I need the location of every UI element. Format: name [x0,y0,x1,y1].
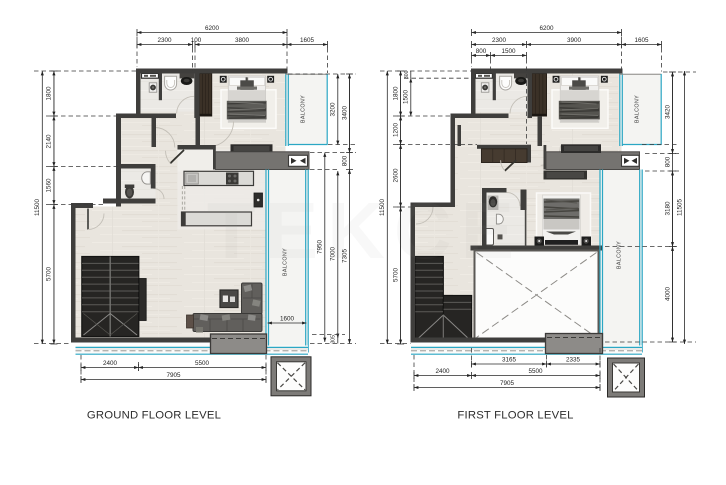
svg-text:800: 800 [664,156,671,167]
svg-text:2600: 2600 [392,168,399,183]
svg-text:4000: 4000 [664,287,671,302]
svg-text:BALCONY: BALCONY [301,95,307,123]
svg-text:7905: 7905 [166,372,181,379]
svg-text:TEKCE: TEKCE [207,186,523,275]
svg-text:11500: 11500 [34,198,41,216]
svg-text:3165: 3165 [502,357,517,364]
svg-text:3900: 3900 [567,37,582,44]
svg-text:6200: 6200 [539,25,554,32]
svg-text:5500: 5500 [195,360,210,367]
svg-text:2335: 2335 [566,357,581,364]
svg-text:1200: 1200 [392,123,399,138]
svg-text:11505: 11505 [676,198,683,216]
svg-text:5700: 5700 [46,267,53,282]
svg-text:GROUND FLOOR LEVEL: GROUND FLOOR LEVEL [87,410,221,422]
svg-text:800: 800 [341,155,348,166]
svg-text:7905: 7905 [500,380,515,387]
svg-text:1560: 1560 [46,178,53,193]
svg-text:3420: 3420 [664,105,671,120]
svg-text:2300: 2300 [492,37,507,44]
svg-text:305: 305 [331,335,337,344]
svg-text:BALCONY: BALCONY [635,95,641,123]
svg-text:1500: 1500 [403,90,410,105]
svg-text:FIRST FLOOR LEVEL: FIRST FLOOR LEVEL [457,410,573,422]
svg-text:2400: 2400 [435,368,450,375]
svg-text:BALCONY: BALCONY [617,241,623,269]
svg-text:2140: 2140 [46,134,53,149]
svg-text:1800: 1800 [392,86,399,101]
svg-text:800: 800 [476,48,487,55]
svg-text:3180: 3180 [664,201,671,216]
svg-text:100: 100 [191,37,202,44]
svg-text:6200: 6200 [205,25,220,32]
svg-text:1800: 1800 [46,86,53,101]
svg-text:1600: 1600 [280,316,295,323]
svg-text:2400: 2400 [103,360,118,367]
svg-text:1605: 1605 [634,37,649,44]
svg-text:3400: 3400 [341,106,348,121]
svg-text:3200: 3200 [330,102,337,117]
svg-text:1605: 1605 [300,37,315,44]
svg-text:3800: 3800 [235,37,250,44]
svg-text:2300: 2300 [157,37,172,44]
svg-text:1500: 1500 [501,48,516,55]
svg-text:300: 300 [404,70,410,79]
svg-text:5500: 5500 [528,368,543,375]
